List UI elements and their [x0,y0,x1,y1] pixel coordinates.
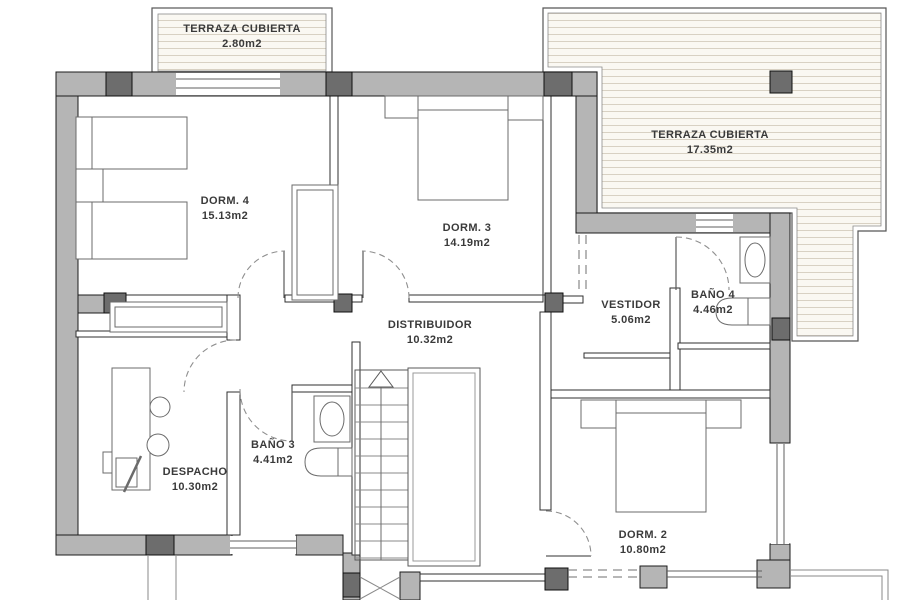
stair-void [408,368,480,566]
wardrobe-despacho [110,302,227,332]
bathroom-fixtures-bano3 [305,396,352,476]
room-name: VESTIDOR [601,298,660,313]
room-label-despacho: DESPACHO 10.30m2 [163,465,228,495]
room-area: 15.13m2 [201,209,250,224]
room-label-dorm-2: DORM. 2 10.80m2 [619,528,668,558]
room-area: 10.30m2 [163,480,228,495]
room-area: 2.80m2 [183,37,301,52]
room-area: 5.06m2 [601,313,660,328]
wardrobe-dorm4 [292,185,338,300]
room-name: DISTRIBUIDOR [388,318,472,333]
desk-icon-despacho [103,368,170,492]
room-name: DESPACHO [163,465,228,480]
room-name: TERRAZA CUBIERTA [651,128,769,143]
room-area: 4.41m2 [251,453,295,468]
room-name: DORM. 3 [443,221,492,236]
bed-single-icons-dorm4 [76,117,187,259]
bed-double-icon-dorm3 [385,96,543,200]
room-label-bano-3: BAÑO 3 4.41m2 [251,438,295,468]
room-name: BAÑO 4 [691,288,735,303]
room-area: 4.46m2 [691,303,735,318]
room-label-bano-4: BAÑO 4 4.46m2 [691,288,735,318]
room-label-distribuidor: DISTRIBUIDOR 10.32m2 [388,318,472,348]
room-name: DORM. 2 [619,528,668,543]
room-area: 10.32m2 [388,333,472,348]
room-label-terraza-large: TERRAZA CUBIERTA 17.35m2 [651,128,769,158]
room-label-dorm-4: DORM. 4 15.13m2 [201,194,250,224]
room-area: 10.80m2 [619,543,668,558]
room-name: TERRAZA CUBIERTA [183,22,301,37]
floor-plan: TERRAZA CUBIERTA 2.80m2 TERRAZA CUBIERTA… [0,0,898,600]
room-name: DORM. 4 [201,194,250,209]
bed-double-icon-dorm2 [581,400,741,512]
room-area: 14.19m2 [443,236,492,251]
room-label-vestidor: VESTIDOR 5.06m2 [601,298,660,328]
staircase [355,370,408,599]
room-name: BAÑO 3 [251,438,295,453]
stairs-up-arrow-icon [369,371,393,387]
floor-plan-drawing [0,0,898,600]
room-label-terraza-small: TERRAZA CUBIERTA 2.80m2 [183,22,301,52]
room-label-dorm-3: DORM. 3 14.19m2 [443,221,492,251]
room-area: 17.35m2 [651,143,769,158]
